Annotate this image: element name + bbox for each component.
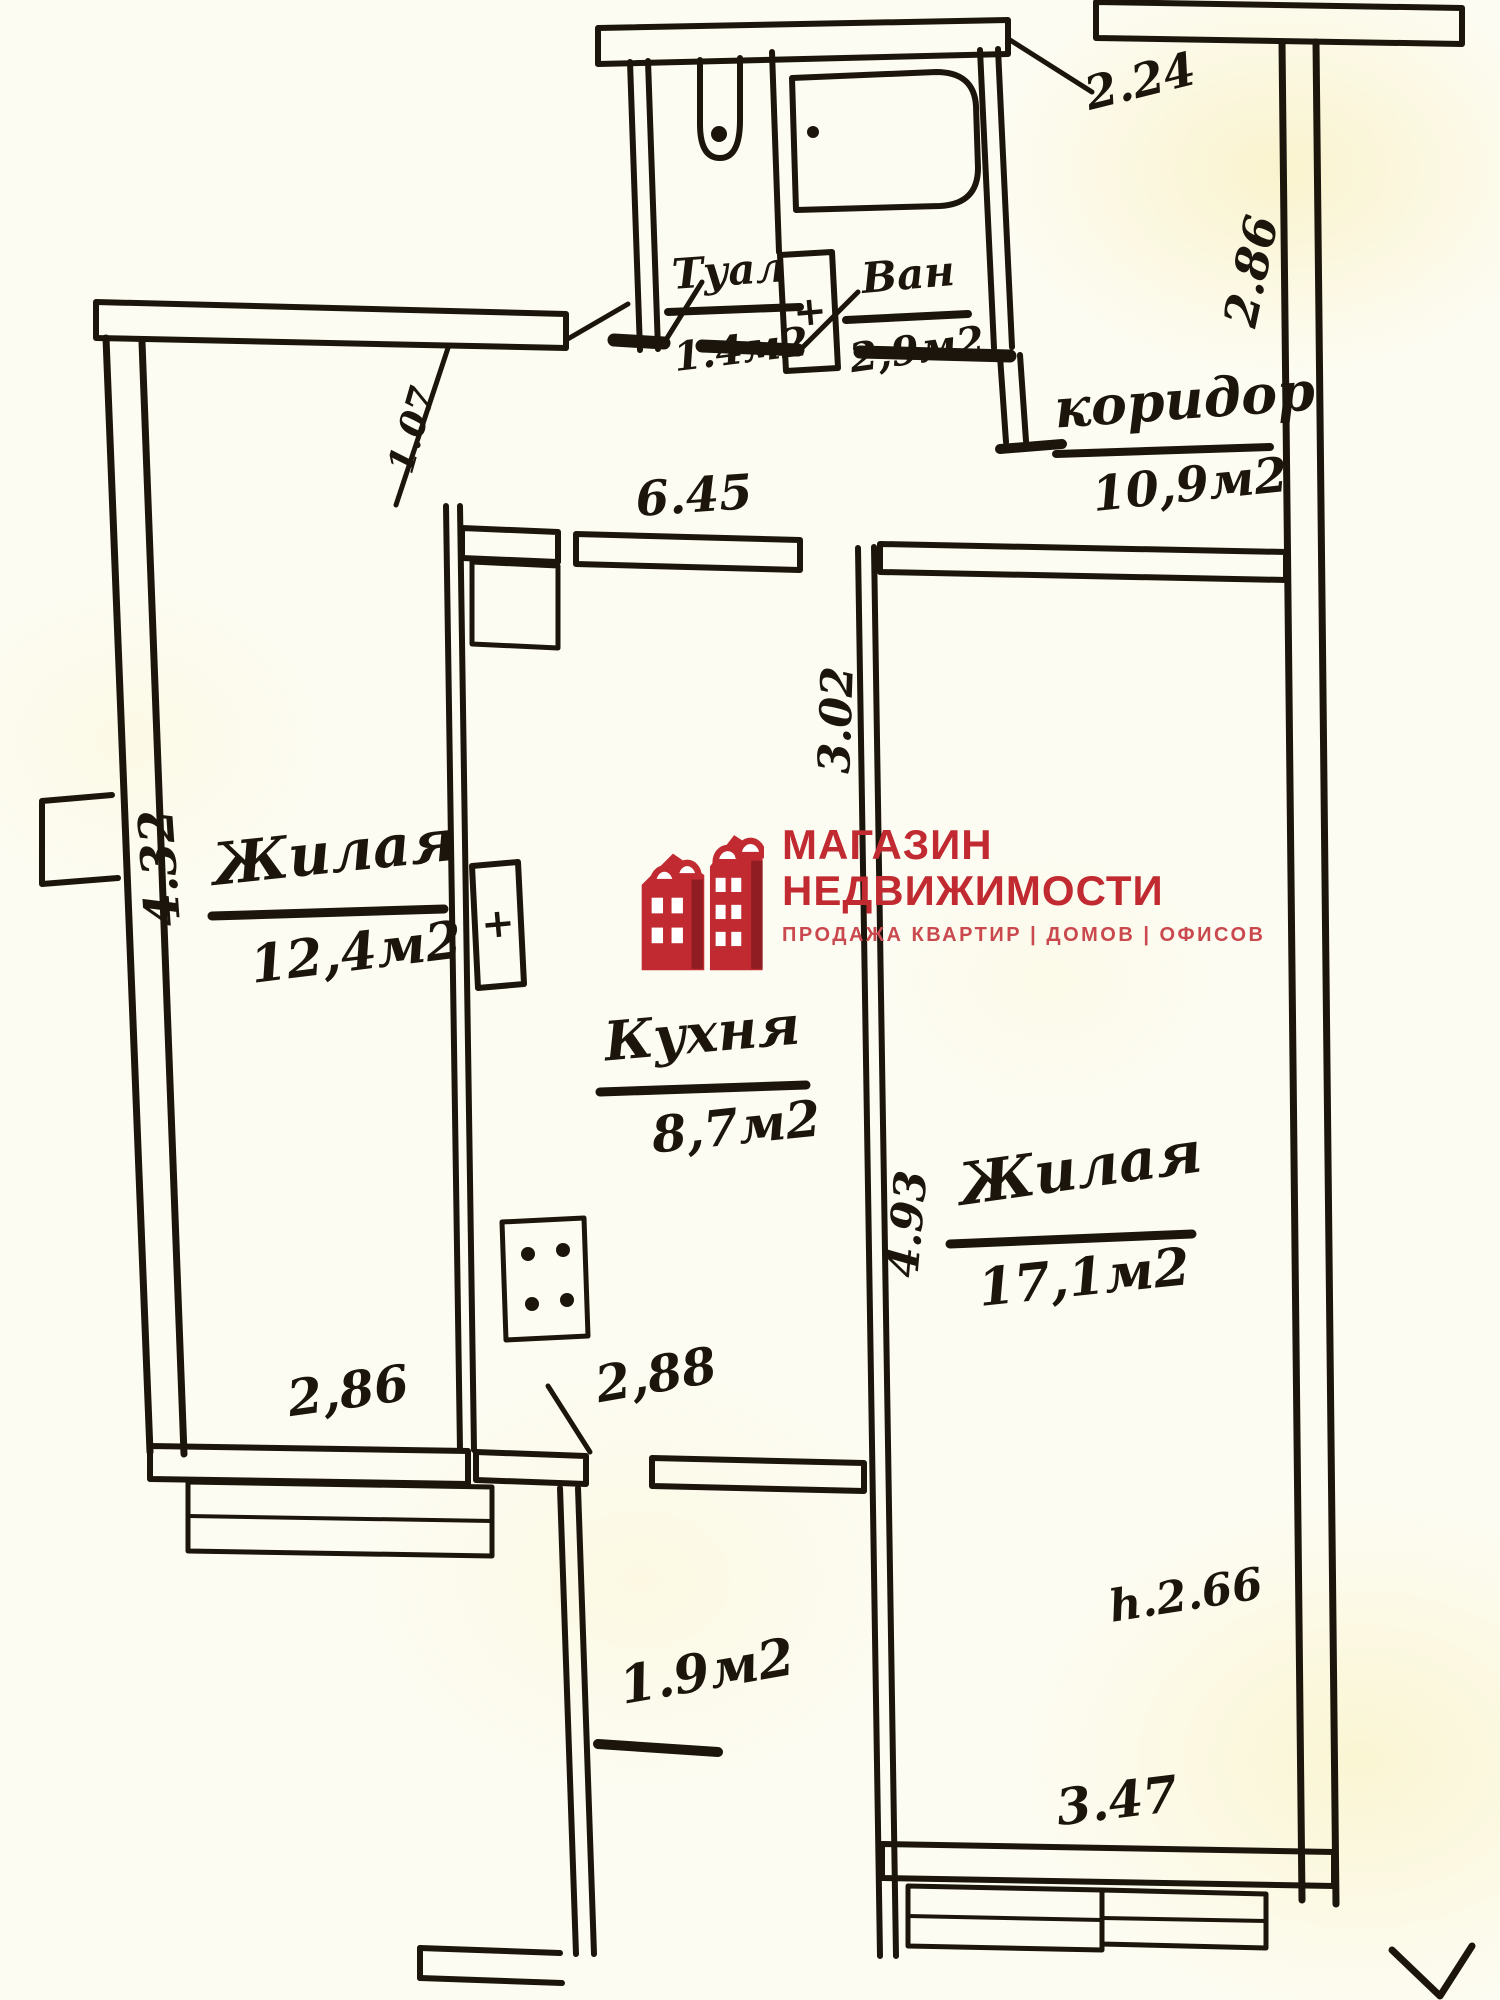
vent-cross-kitchen: + bbox=[476, 902, 519, 945]
room-label-corridor: коридор bbox=[1052, 366, 1275, 435]
brand-name-line2: НЕДВИЖИМОСТИ bbox=[782, 868, 1265, 914]
brand-buildings-icon bbox=[636, 822, 764, 972]
window-left bbox=[188, 1482, 492, 1556]
bathtub-icon bbox=[792, 72, 978, 210]
toilet-icon bbox=[700, 58, 740, 158]
room-label-kitchen: Кухня bbox=[600, 997, 804, 1068]
brand-tagline: ПРОДАЖА КВАРТИР | ДОМОВ | ОФИСОВ bbox=[782, 924, 1265, 947]
dim-kitchen-length: 3.02 bbox=[812, 634, 862, 805]
scanned-floorplan-page: Туал 1.4м2 Ван 2,9м2 коридор 10,9м2 Жила… bbox=[0, 0, 1500, 2000]
dim-hall-width: 6.45 bbox=[613, 466, 776, 525]
brand-watermark: МАГАЗИН НЕДВИЖИМОСТИ ПРОДАЖА КВАРТИР | Д… bbox=[636, 822, 1265, 972]
room-label-bath: Ван bbox=[844, 249, 971, 302]
window-right bbox=[908, 1886, 1266, 1950]
vent-cross-bath: + bbox=[788, 290, 831, 333]
brand-name-line1: МАГАЗИН bbox=[782, 822, 1265, 868]
stove-icon bbox=[502, 1218, 588, 1340]
room-label-toilet: Туал bbox=[663, 246, 796, 297]
